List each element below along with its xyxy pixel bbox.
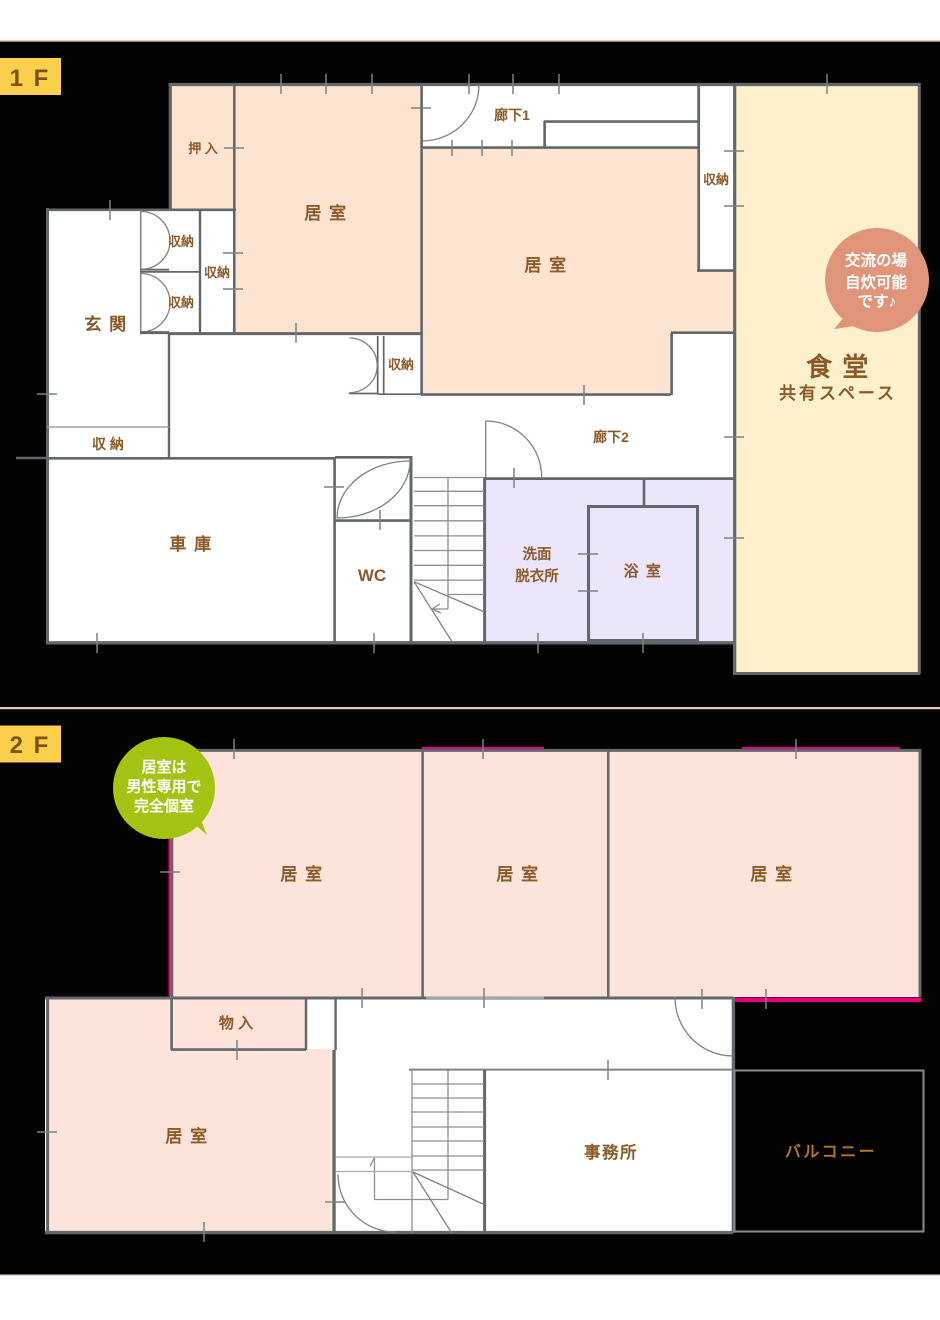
svg-text:居 室: 居 室 [496,864,539,884]
svg-text:2 F: 2 F [10,732,51,759]
svg-text:収納: 収納 [703,172,729,187]
svg-text:脱衣所: 脱衣所 [515,567,559,585]
svg-text:浴 室: 浴 室 [624,562,663,580]
svg-text:車 庫: 車 庫 [169,534,212,554]
svg-text:居 室: 居 室 [304,203,347,223]
svg-text:廊下1: 廊下1 [494,107,530,123]
svg-text:収 納: 収 納 [92,436,124,452]
svg-text:交流の場: 交流の場 [845,251,908,270]
svg-text:収納: 収納 [168,295,194,310]
svg-text:1 F: 1 F [10,65,51,92]
svg-text:自炊可能: 自炊可能 [845,273,908,292]
svg-text:物 入: 物 入 [219,1014,253,1032]
svg-text:男性専用で: 男性専用で [126,778,201,796]
svg-text:居 室: 居 室 [750,864,793,884]
svg-text:収納: 収納 [388,357,414,372]
svg-text:完全個室: 完全個室 [134,797,194,815]
svg-text:居室は: 居室は [141,758,186,776]
svg-text:玄 関: 玄 関 [84,314,127,334]
svg-text:居 室: 居 室 [165,1126,208,1146]
svg-text:居 室: 居 室 [524,255,567,275]
svg-text:共有スペース: 共有スペース [779,383,897,403]
svg-text:押 入: 押 入 [188,141,218,156]
svg-text:収納: 収納 [168,234,194,249]
svg-text:です♪: です♪ [858,293,897,311]
svg-text:廊下2: 廊下2 [593,429,629,445]
svg-text:洗面: 洗面 [523,545,552,563]
svg-text:食 堂: 食 堂 [806,352,870,382]
svg-text:居 室: 居 室 [280,864,323,884]
svg-text:バルコニー: バルコニー [785,1143,877,1161]
svg-text:WC: WC [358,566,386,585]
svg-text:事務所: 事務所 [584,1142,638,1162]
svg-text:収納: 収納 [204,265,230,280]
